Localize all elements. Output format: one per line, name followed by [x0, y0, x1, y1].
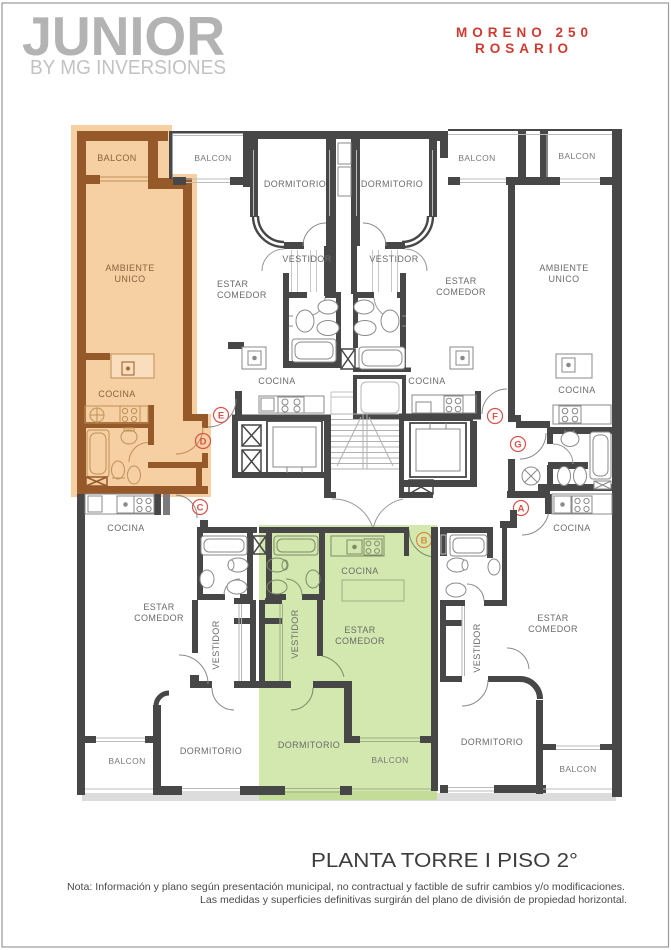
svg-text:D: D	[200, 437, 207, 448]
svg-text:BALCON: BALCON	[108, 756, 145, 766]
svg-text:VESTIDOR: VESTIDOR	[472, 623, 482, 672]
svg-text:F: F	[492, 412, 498, 423]
svg-text:COCINA: COCINA	[258, 376, 295, 386]
svg-text:COMEDOR: COMEDOR	[335, 636, 385, 646]
svg-text:Nota: Información y plano segú: Nota: Información y plano según presenta…	[67, 881, 625, 893]
svg-text:AMBIENTE: AMBIENTE	[105, 263, 154, 273]
svg-text:DORMITORIO: DORMITORIO	[461, 737, 523, 747]
svg-text:COMEDOR: COMEDOR	[134, 613, 184, 623]
svg-text:ROSARIO: ROSARIO	[475, 41, 573, 56]
svg-text:ESTAR: ESTAR	[217, 279, 248, 289]
svg-text:BALCON: BALCON	[97, 153, 136, 163]
svg-text:ESTAR: ESTAR	[344, 625, 375, 635]
svg-text:BY MG INVERSIONES: BY MG INVERSIONES	[30, 57, 226, 79]
svg-text:UNICO: UNICO	[115, 274, 146, 284]
svg-text:UNICO: UNICO	[549, 274, 580, 284]
svg-text:BALCON: BALCON	[559, 764, 596, 774]
svg-text:BALCON: BALCON	[371, 755, 408, 765]
svg-text:COCINA: COCINA	[553, 523, 590, 533]
svg-text:DORMITORIO: DORMITORIO	[278, 740, 340, 750]
svg-text:COCINA: COCINA	[98, 389, 135, 399]
svg-text:COMEDOR: COMEDOR	[528, 624, 578, 634]
svg-text:G: G	[514, 440, 521, 451]
svg-text:MORENO 250: MORENO 250	[456, 25, 593, 40]
svg-text:VESTIDOR: VESTIDOR	[290, 609, 300, 658]
svg-text:AMBIENTE: AMBIENTE	[539, 263, 588, 273]
svg-text:DORMITORIO: DORMITORIO	[264, 179, 326, 189]
svg-text:BALCON: BALCON	[458, 153, 495, 163]
svg-text:PLANTA TORRE I PISO 2°: PLANTA TORRE I PISO 2°	[311, 850, 578, 872]
svg-text:COCINA: COCINA	[107, 523, 144, 533]
svg-text:COMEDOR: COMEDOR	[436, 287, 486, 297]
svg-text:ESTAR: ESTAR	[445, 276, 476, 286]
svg-text:DORMITORIO: DORMITORIO	[180, 746, 242, 756]
svg-text:BALCON: BALCON	[558, 151, 595, 161]
svg-text:ESTAR: ESTAR	[537, 613, 568, 623]
svg-text:COCINA: COCINA	[408, 376, 445, 386]
svg-text:COMEDOR: COMEDOR	[217, 290, 267, 300]
svg-text:COCINA: COCINA	[558, 385, 595, 395]
svg-text:Las medidas y superficies def: Las medidas y superficies definitivas su…	[200, 894, 627, 906]
svg-text:ESTAR: ESTAR	[143, 602, 174, 612]
svg-text:VESTIDOR: VESTIDOR	[211, 620, 221, 669]
svg-text:E: E	[218, 411, 224, 422]
svg-text:B: B	[421, 536, 428, 547]
svg-text:A: A	[518, 504, 525, 515]
svg-text:C: C	[197, 503, 204, 514]
svg-text:VESTIDOR: VESTIDOR	[282, 254, 331, 264]
svg-text:BALCON: BALCON	[194, 153, 231, 163]
svg-text:COCINA: COCINA	[341, 566, 378, 576]
svg-text:VESTIDOR: VESTIDOR	[369, 254, 418, 264]
svg-text:DORMITORIO: DORMITORIO	[361, 179, 423, 189]
